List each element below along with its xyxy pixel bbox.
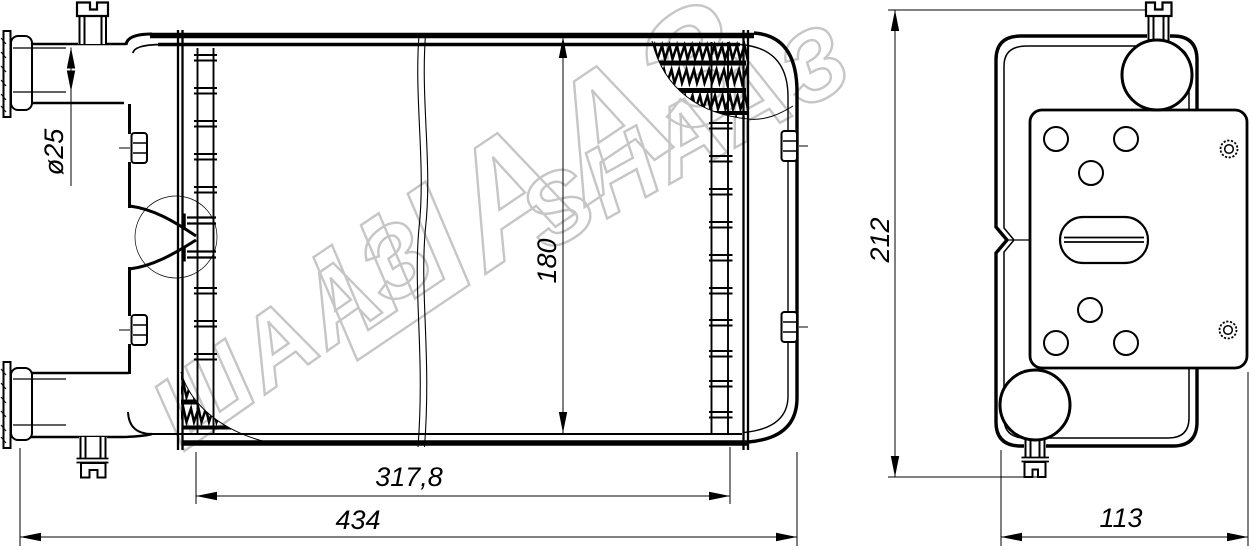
bleed-screw <box>77 3 108 45</box>
dim-pipe-diameter: ø25 <box>39 48 75 187</box>
outlet-pipe <box>1 362 152 448</box>
mounting-plate <box>1030 110 1247 368</box>
side-top-fitting <box>1146 3 1172 45</box>
tank-seam-detail <box>130 196 218 278</box>
dimension-side-depth: 113 <box>1099 503 1142 533</box>
drawing-canvas: ШААЗ ШААЗ SHAAЗ <box>0 0 1253 550</box>
watermark: ШААЗ ШААЗ SHAAЗ <box>131 0 870 470</box>
drain-plug <box>77 437 109 478</box>
side-inlet-circle <box>1122 40 1192 110</box>
dimension-side-height: 212 <box>865 217 895 263</box>
inlet-pipe <box>1 31 126 117</box>
side-outlet-circle <box>1000 370 1070 440</box>
side-view <box>996 3 1247 478</box>
tank-clip <box>119 133 147 163</box>
dimension-overall-width: 434 <box>335 505 380 535</box>
dimension-core-width: 317,8 <box>375 462 443 492</box>
dimension-core-height: 180 <box>532 238 562 283</box>
side-bottom-fitting <box>1022 437 1050 477</box>
dim-core-width: 317,8 <box>196 447 730 504</box>
dimension-pipe-diameter: ø25 <box>39 128 69 176</box>
radiator-technical-drawing: ШААЗ ШААЗ SHAAЗ <box>0 0 1253 550</box>
tank-clip <box>782 131 809 161</box>
tank-clip <box>782 312 809 342</box>
tank-clip <box>119 315 147 345</box>
